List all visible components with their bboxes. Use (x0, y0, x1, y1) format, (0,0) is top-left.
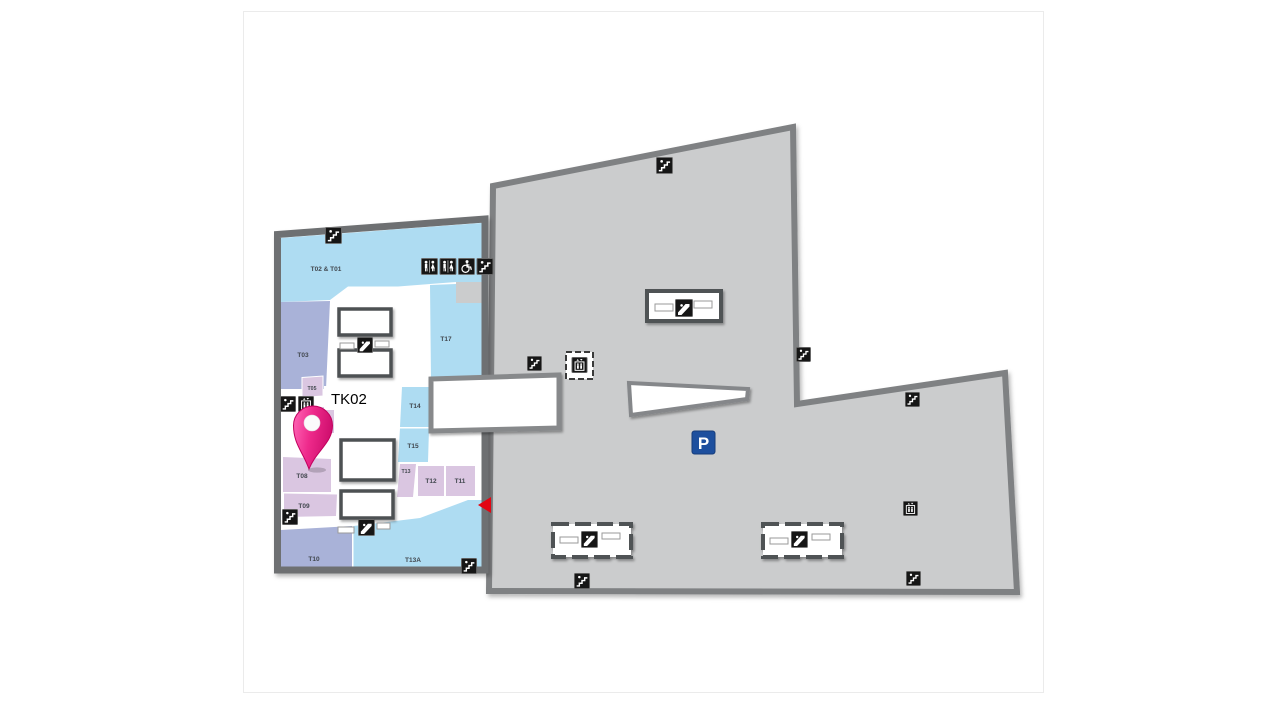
tenant-label: T09 (298, 503, 310, 510)
stairs-icon (796, 347, 810, 361)
tenant-label: T02 & T01 (311, 266, 342, 273)
escalator-lane (375, 341, 389, 347)
escalator-lane (377, 523, 390, 529)
parking-sign-label: P (698, 434, 709, 453)
tenant-label: T14 (409, 403, 421, 410)
stairs-icon (325, 227, 341, 243)
escalator-lane (602, 533, 620, 539)
elevator-icon (903, 501, 917, 515)
escalator-lane (812, 534, 830, 540)
stairs-icon (527, 356, 541, 370)
tenant-label: T12 (425, 478, 437, 485)
tenant-label: T05 (308, 386, 317, 392)
stairs-icon (461, 558, 476, 573)
marker-label: TK02 (331, 391, 367, 408)
stairs-icon (574, 573, 589, 588)
stairs-icon (905, 392, 919, 406)
escalator-lane (338, 527, 354, 533)
escalator-lane (655, 304, 673, 311)
tenant-label: T10 (308, 556, 320, 563)
parking-sign: P (692, 431, 715, 454)
stairs-icon (282, 509, 297, 524)
corridor-notch (456, 282, 482, 303)
escalator-lane (560, 537, 578, 543)
tenant-label: T08 (296, 473, 308, 480)
tenant-label: T11 (455, 478, 466, 485)
tenant-label: T17 (440, 336, 452, 343)
tenant-label: T15 (407, 443, 419, 450)
escalator-icon (357, 337, 372, 352)
escalator-icon (358, 519, 374, 535)
tenant-label: T13A (405, 557, 421, 564)
floor-map-page: 3 F (0, 0, 1280, 720)
restroom-icon (440, 258, 456, 274)
escalator-lane (770, 538, 788, 544)
escalator-icon (581, 531, 597, 547)
bridge (431, 375, 559, 431)
escalator-icon (791, 531, 807, 547)
stairs-icon (906, 571, 920, 585)
pin-shadow (308, 467, 326, 472)
tenant-label: T03 (297, 352, 309, 359)
stairs-icon (477, 258, 493, 274)
elevator-icon (572, 357, 587, 372)
stairs-icon (280, 396, 295, 411)
stairs-icon (656, 157, 672, 173)
restroom-icon (421, 258, 437, 274)
tenant-label: T13 (402, 469, 411, 475)
floor-map: P (0, 0, 1280, 720)
accessible-icon (458, 258, 474, 274)
escalator-icon (676, 300, 693, 317)
escalator-lane (340, 343, 354, 349)
escalator-lane (694, 301, 712, 308)
pin-hole (304, 415, 320, 431)
